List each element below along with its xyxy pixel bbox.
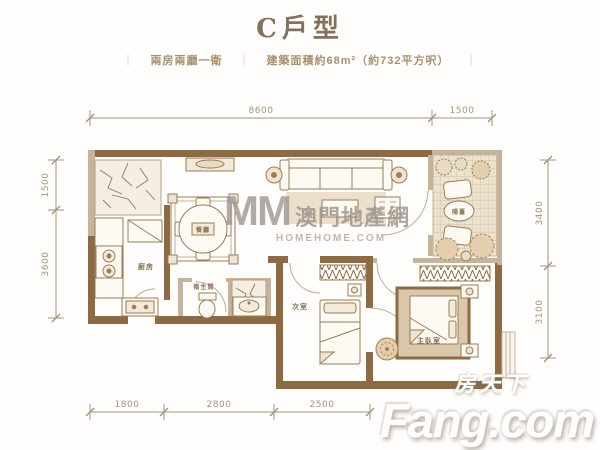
dim-bottom-2: 2800: [207, 400, 232, 410]
sofa-back: [288, 159, 384, 168]
dining-label: 餐廳: [195, 226, 210, 234]
potted-plant: [472, 161, 490, 179]
spec-separator: ｜: [466, 55, 478, 67]
spec-separator: ｜: [238, 55, 250, 67]
spec-line: ｜兩房兩廳一衛｜建築面積約68m²（約732平方呎）｜: [0, 52, 600, 68]
second-bedroom: 次室: [292, 265, 366, 364]
potted-plant: [436, 238, 458, 260]
balcony: 陽臺: [433, 155, 497, 261]
dining-area: 餐廳: [168, 158, 238, 264]
header: C戶型 ｜兩房兩廳一衛｜建築面積約68m²（約732平方呎）｜: [0, 8, 600, 68]
dim-bottom-1: 1800: [115, 400, 140, 410]
kitchen-label: 廚房: [138, 262, 154, 271]
texture-box-topleft: [95, 160, 161, 215]
sofa-seat: [288, 168, 384, 189]
page-title: C戶型: [0, 8, 600, 45]
master-bedroom-label: 主臥室: [417, 336, 441, 345]
potted-plant: [436, 159, 452, 175]
bathroom-label: 衛生間: [192, 283, 214, 291]
spec-layout: 兩房兩廳一衛: [150, 55, 222, 67]
dim-right-2: 3100: [535, 300, 545, 325]
floorplan-page: C戶型 ｜兩房兩廳一衛｜建築面積約68m²（約732平方呎）｜: [0, 0, 600, 450]
balcony-chair: [443, 179, 472, 199]
master-bedroom: 主臥室: [376, 266, 490, 360]
dim-right-1: 3400: [535, 201, 545, 226]
spec-separator: ｜: [122, 55, 134, 67]
potted-plant: [470, 234, 494, 258]
pillow: [449, 300, 456, 317]
living-room: [266, 159, 407, 224]
kitchen: 廚房: [95, 218, 162, 316]
dim-bottom-3: 2500: [310, 400, 335, 410]
tv-cabinet: [375, 197, 400, 218]
spec-area: 建築面積約68m²（約732平方呎）: [266, 55, 449, 67]
dim-left-1: 1500: [41, 173, 51, 198]
second-bedroom-label: 次室: [292, 302, 308, 311]
toilet: [199, 293, 216, 300]
balcony-label: 陽臺: [452, 208, 466, 216]
dim-top-2: 1500: [450, 106, 475, 116]
potted-plant: [461, 251, 471, 261]
pillow: [449, 321, 456, 338]
wardrobe: [420, 266, 490, 281]
potted-plant: [455, 158, 467, 170]
wardrobe: [320, 265, 366, 280]
dim-left-2: 3600: [41, 252, 51, 277]
coffee-table: [322, 200, 358, 217]
pillow: [324, 303, 356, 313]
dim-top-1: 8600: [249, 106, 274, 116]
